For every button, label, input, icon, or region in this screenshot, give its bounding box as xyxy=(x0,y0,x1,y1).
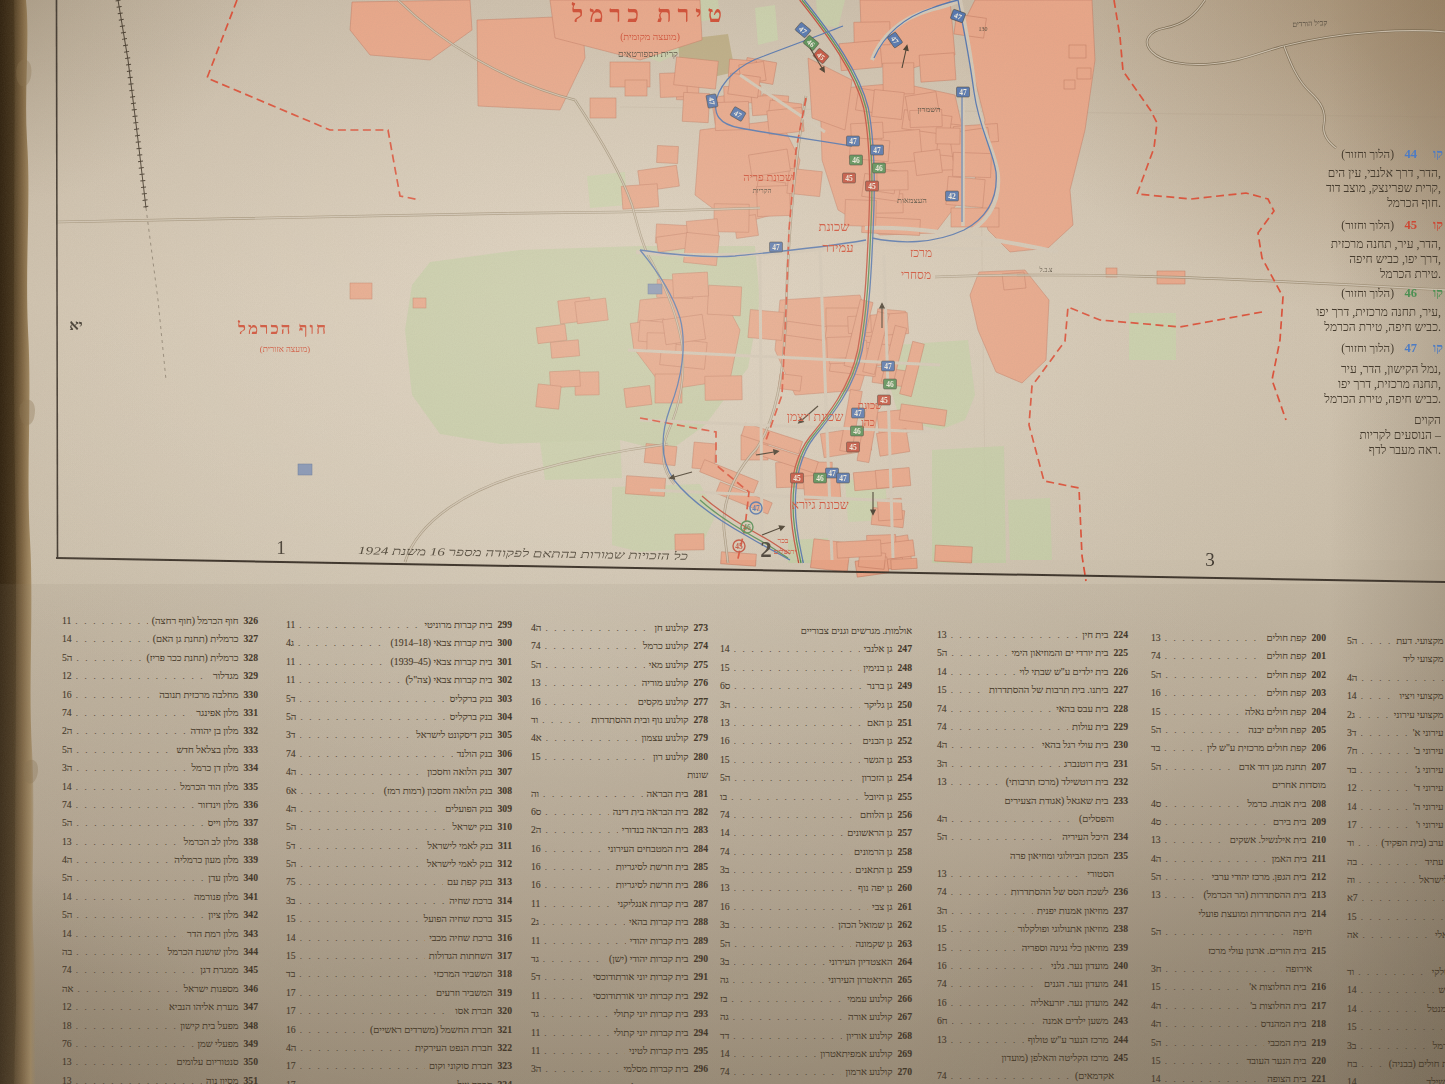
svg-text:הקוים: הקוים xyxy=(1414,413,1441,427)
svg-text:הדר, עיר, תחנה מרכזית,: הדר, עיר, תחנה מרכזית, xyxy=(1331,237,1441,251)
svg-text:2: 2 xyxy=(760,537,772,562)
svg-text:חוף הכרמל: חוף הכרמל xyxy=(237,319,328,338)
svg-text:45: 45 xyxy=(868,182,876,191)
svg-text:קו: קו xyxy=(1433,218,1443,232)
svg-text:בכר: בכר xyxy=(778,536,789,545)
svg-text:כהן: כהן xyxy=(861,417,875,428)
svg-text:47: 47 xyxy=(752,504,760,513)
svg-text:46: 46 xyxy=(853,427,861,436)
svg-text:130: 130 xyxy=(979,26,988,32)
svg-text:קו: קו xyxy=(1433,147,1443,161)
svg-text:47: 47 xyxy=(772,243,780,252)
svg-text:צ.ב.ל: צ.ב.ל xyxy=(1039,266,1053,273)
svg-text:47: 47 xyxy=(873,146,881,155)
svg-text:מסחרי: מסחרי xyxy=(901,268,931,282)
svg-text:הנוסעים לקריות –: הנוסעים לקריות – xyxy=(1359,428,1442,442)
svg-text:46: 46 xyxy=(886,380,894,389)
svg-text:קביל הורדים: קביל הורדים xyxy=(1292,18,1328,29)
svg-text:הדר, דרך אלנבי, עין הים,: הדר, דרך אלנבי, עין הים, xyxy=(1328,166,1441,180)
svg-text:44: 44 xyxy=(1405,147,1418,161)
svg-text:דרך יפו, כביש חיפה,: דרך יפו, כביש חיפה, xyxy=(1349,252,1441,266)
svg-text:העצמאות: העצמאות xyxy=(897,196,927,205)
svg-text:47: 47 xyxy=(839,474,847,483)
svg-text:קו: קו xyxy=(1433,286,1443,300)
svg-text:46: 46 xyxy=(816,474,824,483)
svg-text:כביש חיפה, טירת הכרמל.: כביש חיפה, טירת הכרמל. xyxy=(1323,320,1441,334)
svg-text:45: 45 xyxy=(735,542,743,551)
svg-text:חוף הכרמל.: חוף הכרמל. xyxy=(1386,196,1441,210)
svg-text:(הלוך וחזור): (הלוך וחזור) xyxy=(1341,219,1394,232)
svg-text:קו: קו xyxy=(1433,341,1443,355)
svg-text:טירת כרמל: טירת כרמל xyxy=(571,1,728,27)
svg-text:47: 47 xyxy=(884,362,892,371)
svg-text:תחנה מרכזית, דרך יפו,: תחנה מרכזית, דרך יפו, xyxy=(1338,377,1441,391)
svg-text:42: 42 xyxy=(948,192,956,201)
svg-text:46: 46 xyxy=(852,156,860,165)
svg-text:שכונת: שכונת xyxy=(818,219,850,234)
svg-text:שכונת גיורא: שכונת גיורא xyxy=(791,498,848,512)
svg-text:(הלוך וחזור): (הלוך וחזור) xyxy=(1341,148,1394,161)
svg-text:45: 45 xyxy=(845,174,853,183)
svg-text:שכונת פריה: שכונת פריה xyxy=(743,171,793,183)
svg-text:עיר, תחנה מרכזית, דרך יפו,: עיר, תחנה מרכזית, דרך יפו, xyxy=(1316,305,1441,319)
svg-text:47: 47 xyxy=(1405,341,1418,355)
svg-text:השמרון: השמרון xyxy=(917,105,940,114)
svg-text:נמל הקישון, הדר, עיר,: נמל הקישון, הדר, עיר, xyxy=(1341,362,1441,376)
svg-text:שכונת: שכונת xyxy=(857,400,883,411)
svg-text:הקריות: הקריות xyxy=(752,187,771,195)
svg-text:קרית שפרינצק, מוצב דוד,: קרית שפרינצק, מוצב דוד, xyxy=(1326,181,1441,195)
svg-text:47: 47 xyxy=(849,137,857,146)
svg-text:46: 46 xyxy=(875,164,883,173)
svg-text:45: 45 xyxy=(1405,218,1418,232)
svg-text:מרכז: מרכז xyxy=(910,246,932,260)
svg-text:שכונת ויצמן: שכונת ויצמן xyxy=(787,410,844,424)
svg-text:3: 3 xyxy=(1205,549,1215,570)
svg-text:45: 45 xyxy=(793,474,801,483)
svg-text:47: 47 xyxy=(959,88,967,97)
svg-text:ירושלים: ירושלים xyxy=(773,547,796,556)
svg-text:46: 46 xyxy=(743,523,751,532)
svg-text:ראה מעבר לדף.: ראה מעבר לדף. xyxy=(1369,443,1441,457)
svg-text:1: 1 xyxy=(276,537,286,558)
svg-text:יא: יא xyxy=(69,317,83,333)
svg-text:(מועצה מקומית): (מועצה מקומית) xyxy=(620,32,680,43)
svg-text:(הלוך וחזור): (הלוך וחזור) xyxy=(1341,342,1394,355)
svg-text:(מועצה אזורית): (מועצה אזורית) xyxy=(260,344,311,354)
svg-text:45: 45 xyxy=(849,443,857,452)
svg-text:47: 47 xyxy=(828,469,836,478)
svg-text:46: 46 xyxy=(1405,286,1418,300)
svg-text:כביש חיפה, טירת הכרמל.: כביש חיפה, טירת הכרמל. xyxy=(1323,392,1441,406)
svg-text:טירת הכרמל.: טירת הכרמל. xyxy=(1379,267,1441,281)
svg-text:עמידר: עמידר xyxy=(822,240,853,255)
svg-text:(הלוך וחזור): (הלוך וחזור) xyxy=(1341,287,1394,300)
svg-text:קרית הספורטאים: קרית הספורטאים xyxy=(618,49,678,59)
